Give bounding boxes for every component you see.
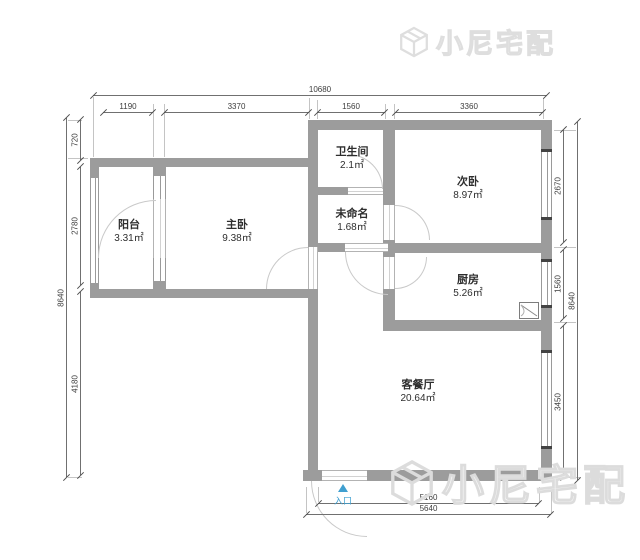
wall bbox=[308, 120, 318, 480]
dim-label: 3450 bbox=[554, 392, 563, 412]
door-opening bbox=[345, 243, 388, 252]
dim-label: 8640 bbox=[57, 288, 66, 308]
extension-line bbox=[68, 477, 82, 478]
flue-icon bbox=[519, 302, 539, 319]
dim-right-seg2: 1560 bbox=[563, 250, 564, 318]
extension-line bbox=[306, 487, 307, 513]
room-living-dining[interactable]: 客餐厅 20.64㎡ bbox=[378, 379, 458, 405]
window-cap bbox=[541, 217, 552, 220]
window-cap bbox=[541, 305, 552, 308]
room-master-bedroom[interactable]: 主卧 9.38㎡ bbox=[197, 219, 277, 245]
room-area: 8.97㎡ bbox=[428, 189, 508, 202]
dim-label: 1560 bbox=[342, 102, 360, 111]
entrance-label: 入口 bbox=[327, 494, 359, 507]
extension-line bbox=[554, 130, 576, 131]
cube-logo-icon bbox=[398, 26, 430, 58]
dim-label: 720 bbox=[71, 132, 80, 147]
entrance-opening bbox=[322, 470, 367, 481]
window bbox=[541, 152, 552, 217]
dim-left-seg2: 2780 bbox=[80, 167, 81, 285]
dim-top-total: 10680 bbox=[93, 95, 547, 96]
wall bbox=[383, 320, 552, 331]
window-cap bbox=[541, 350, 552, 353]
room-area: 2.1㎡ bbox=[312, 159, 392, 172]
dim-label: 10680 bbox=[309, 85, 331, 94]
window-cap bbox=[541, 149, 552, 152]
wall bbox=[90, 158, 318, 167]
window bbox=[153, 176, 166, 199]
extension-line bbox=[93, 97, 94, 157]
room-kitchen[interactable]: 厨房 5.26㎡ bbox=[428, 274, 508, 300]
dim-label: 8640 bbox=[568, 291, 577, 311]
door-arc-hallway bbox=[345, 252, 388, 295]
dim-right-total: 8640 bbox=[577, 122, 578, 480]
extension-line bbox=[68, 158, 88, 159]
door-arc-master-bedroom bbox=[266, 247, 308, 289]
wall bbox=[153, 167, 166, 176]
room-balcony[interactable]: 阳台 3.31㎡ bbox=[89, 219, 169, 245]
dim-left-seg3: 4180 bbox=[80, 292, 81, 475]
dim-top-seg2: 3370 bbox=[164, 112, 309, 113]
dim-label: 1560 bbox=[554, 274, 563, 294]
watermark-top: 小尼宅配 bbox=[398, 22, 556, 61]
room-area: 5.26㎡ bbox=[428, 287, 508, 300]
room-name: 主卧 bbox=[197, 219, 277, 232]
room-name: 次卧 bbox=[428, 176, 508, 189]
door-opening bbox=[308, 247, 318, 289]
room-second-bedroom[interactable]: 次卧 8.97㎡ bbox=[428, 176, 508, 202]
door-arc-second-bedroom bbox=[395, 205, 430, 240]
dim-label: 2780 bbox=[71, 216, 80, 236]
extension-line bbox=[551, 487, 552, 513]
extension-line bbox=[318, 487, 319, 502]
room-area: 20.64㎡ bbox=[378, 392, 458, 405]
room-name: 厨房 bbox=[428, 274, 508, 287]
wall bbox=[383, 243, 552, 253]
dim-bottom-outer: 5640 bbox=[306, 514, 551, 515]
window bbox=[153, 258, 166, 281]
dim-label: 2670 bbox=[554, 176, 563, 196]
room-bathroom[interactable]: 卫生间 2.1㎡ bbox=[312, 146, 392, 172]
wall bbox=[153, 281, 166, 289]
dim-top-seg4: 3360 bbox=[395, 112, 543, 113]
entrance-arrow-icon bbox=[338, 484, 348, 492]
dim-left-seg1: 720 bbox=[80, 120, 81, 160]
dim-label: 3370 bbox=[228, 102, 246, 111]
door-arc-kitchen bbox=[395, 257, 427, 289]
room-unnamed[interactable]: 未命名 1.68㎡ bbox=[312, 208, 392, 234]
room-name: 卫生间 bbox=[312, 146, 392, 159]
window bbox=[541, 262, 552, 305]
dim-top-seg1: 1190 bbox=[103, 112, 153, 113]
room-area: 3.31㎡ bbox=[89, 232, 169, 245]
window-cap bbox=[541, 259, 552, 262]
window bbox=[541, 353, 552, 446]
dim-label: 5640 bbox=[420, 504, 438, 513]
dim-right-seg1: 2670 bbox=[563, 130, 564, 242]
room-name: 客餐厅 bbox=[378, 379, 458, 392]
wall bbox=[90, 289, 318, 298]
window-cap bbox=[541, 446, 552, 449]
room-name: 阳台 bbox=[89, 219, 169, 232]
dim-label: 5160 bbox=[420, 493, 438, 502]
dim-left-total: 8640 bbox=[66, 118, 67, 477]
dim-label: 3360 bbox=[460, 102, 478, 111]
room-area: 1.68㎡ bbox=[312, 221, 392, 234]
dim-label: 4180 bbox=[71, 374, 80, 394]
wall bbox=[308, 120, 552, 130]
dim-label: 1190 bbox=[119, 102, 136, 111]
floor-plan: 阳台 3.31㎡ 主卧 9.38㎡ 卫生间 2.1㎡ 未命名 1.68㎡ 次卧 … bbox=[0, 0, 640, 560]
watermark-text: 小尼宅配 bbox=[436, 22, 556, 61]
room-name: 未命名 bbox=[312, 208, 392, 221]
dim-right-seg3: 3450 bbox=[563, 326, 564, 477]
room-area: 9.38㎡ bbox=[197, 232, 277, 245]
dim-top-seg3: 1560 bbox=[317, 112, 385, 113]
